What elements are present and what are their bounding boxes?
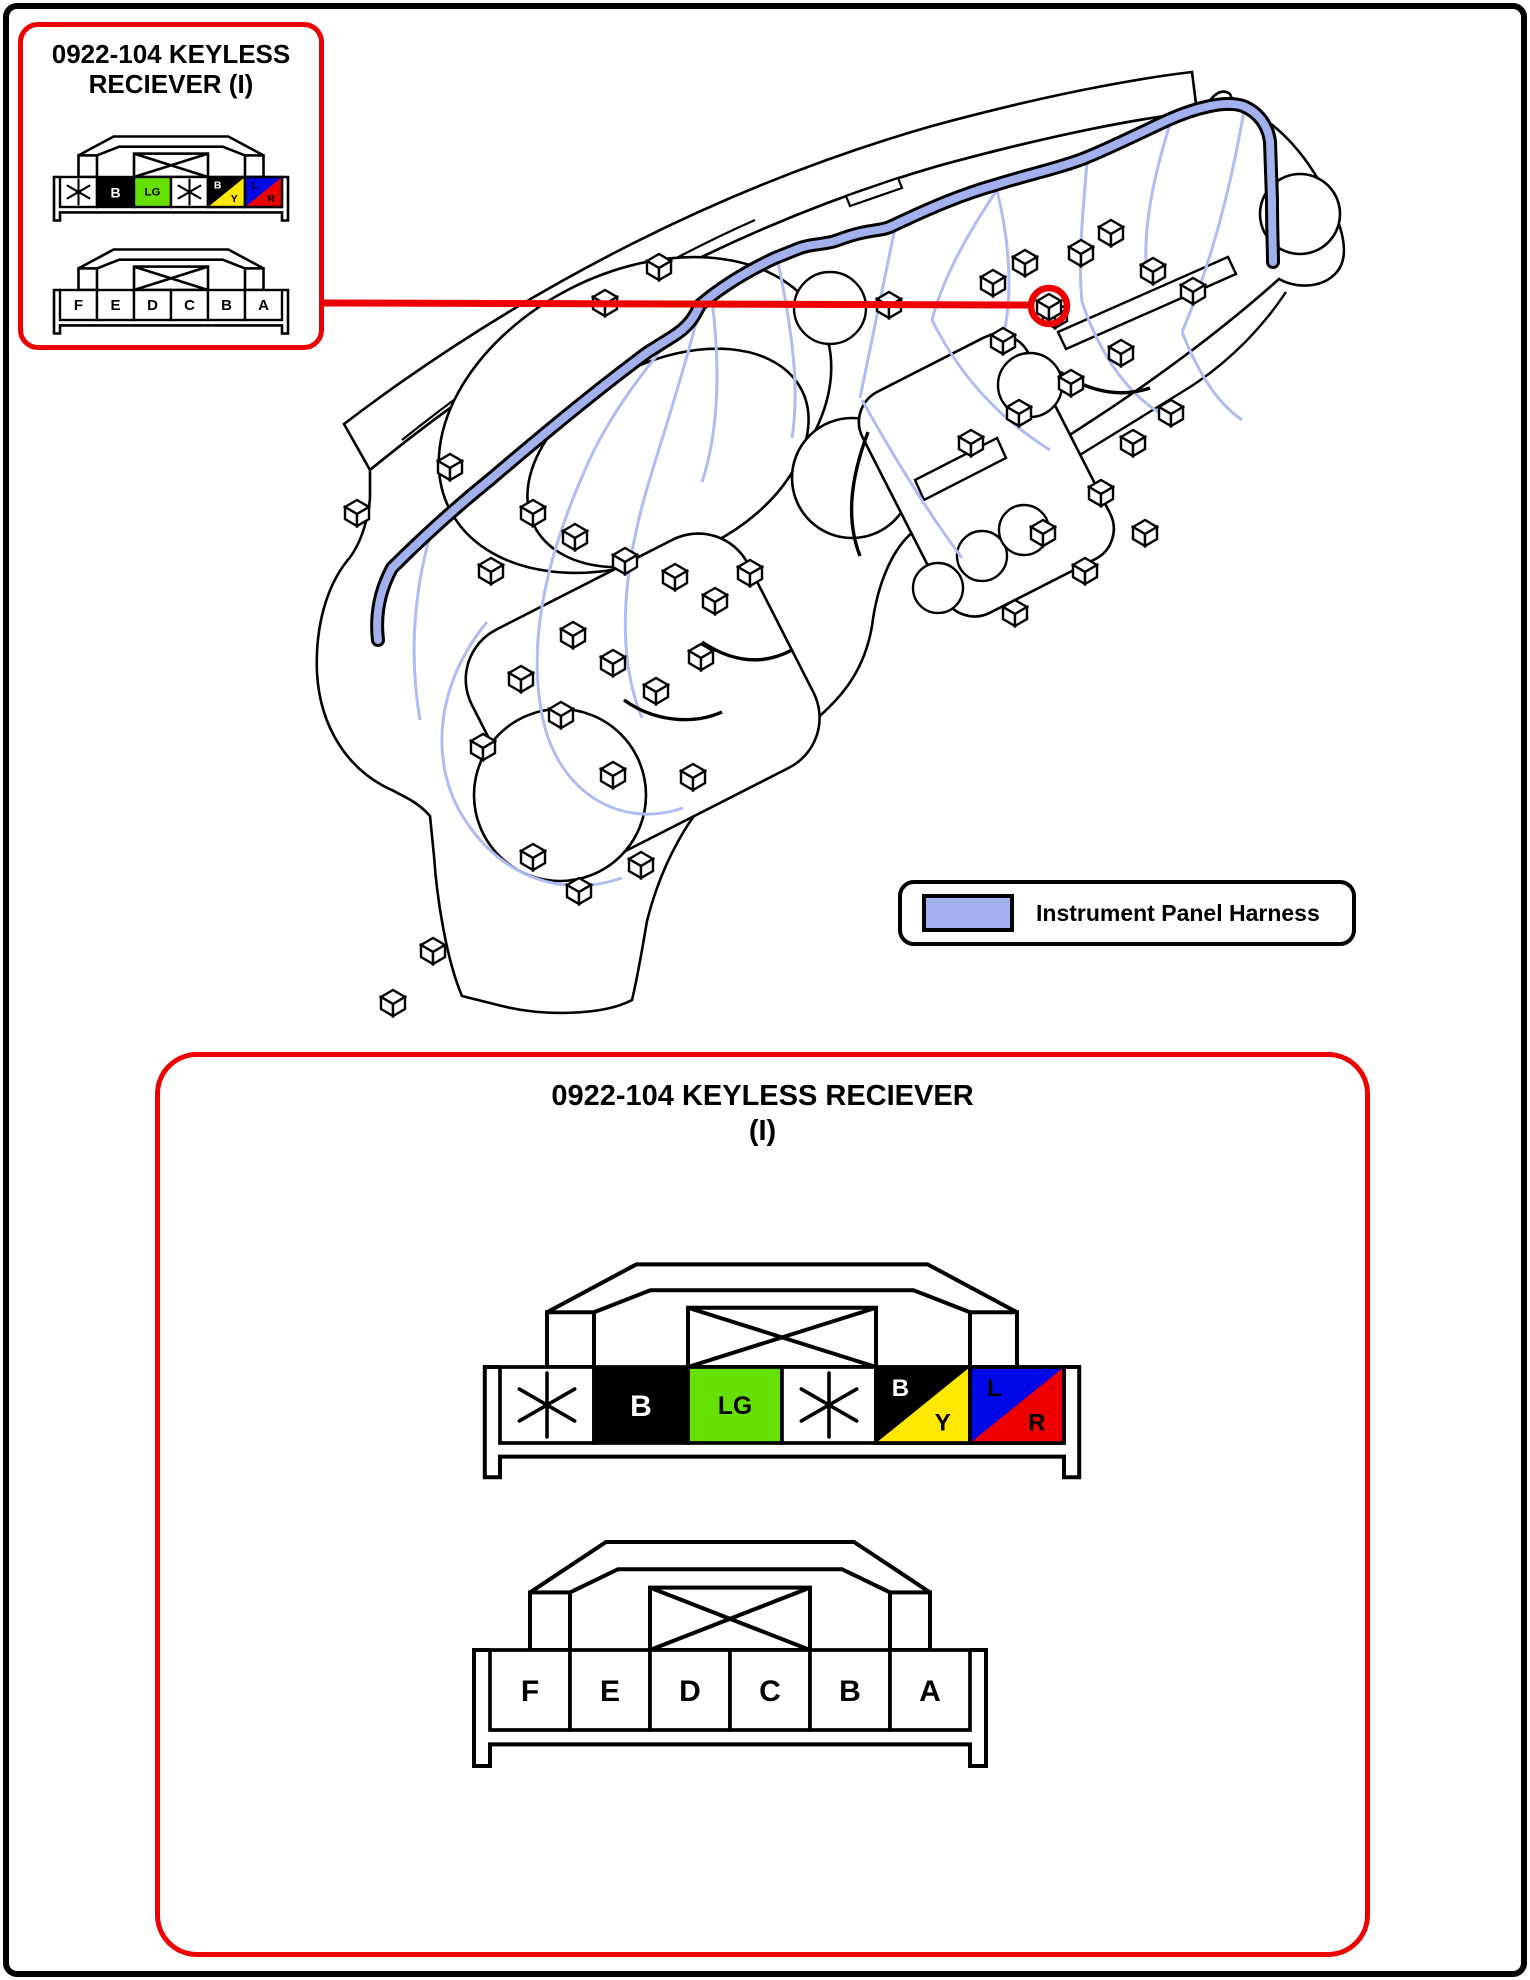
- callout-line: [322, 303, 1029, 305]
- svg-text:D: D: [147, 297, 158, 314]
- svg-text:F: F: [521, 1675, 539, 1708]
- inset-callout-box: 0922-104 KEYLESS RECIEVER (I) BLGBYLR FE…: [18, 22, 324, 350]
- svg-text:A: A: [919, 1675, 941, 1708]
- dashboard-body: [317, 92, 1344, 1013]
- svg-text:E: E: [110, 297, 120, 314]
- legend-harness-swatch: [922, 894, 1014, 932]
- connector-diagram-pin-side: FEDCBA: [160, 1057, 1365, 1952]
- svg-text:C: C: [759, 1675, 781, 1708]
- connector-diagram-mini-pin-side: FEDCBA: [23, 27, 319, 345]
- svg-text:C: C: [184, 297, 195, 314]
- svg-text:B: B: [221, 297, 232, 314]
- detail-box: 0922-104 KEYLESS RECIEVER (I) BLGBYLR FE…: [155, 1052, 1370, 1957]
- steering-column-hole: [474, 709, 646, 881]
- svg-text:D: D: [679, 1675, 701, 1708]
- svg-text:F: F: [74, 297, 83, 314]
- svg-text:A: A: [258, 297, 269, 314]
- manual-page: 0922-104 KEYLESS RECIEVER (I) BLGBYLR FE…: [0, 0, 1530, 1980]
- legend-label: Instrument Panel Harness: [1036, 900, 1320, 927]
- legend-box: Instrument Panel Harness: [898, 880, 1356, 946]
- svg-text:B: B: [839, 1675, 861, 1708]
- svg-text:E: E: [600, 1675, 620, 1708]
